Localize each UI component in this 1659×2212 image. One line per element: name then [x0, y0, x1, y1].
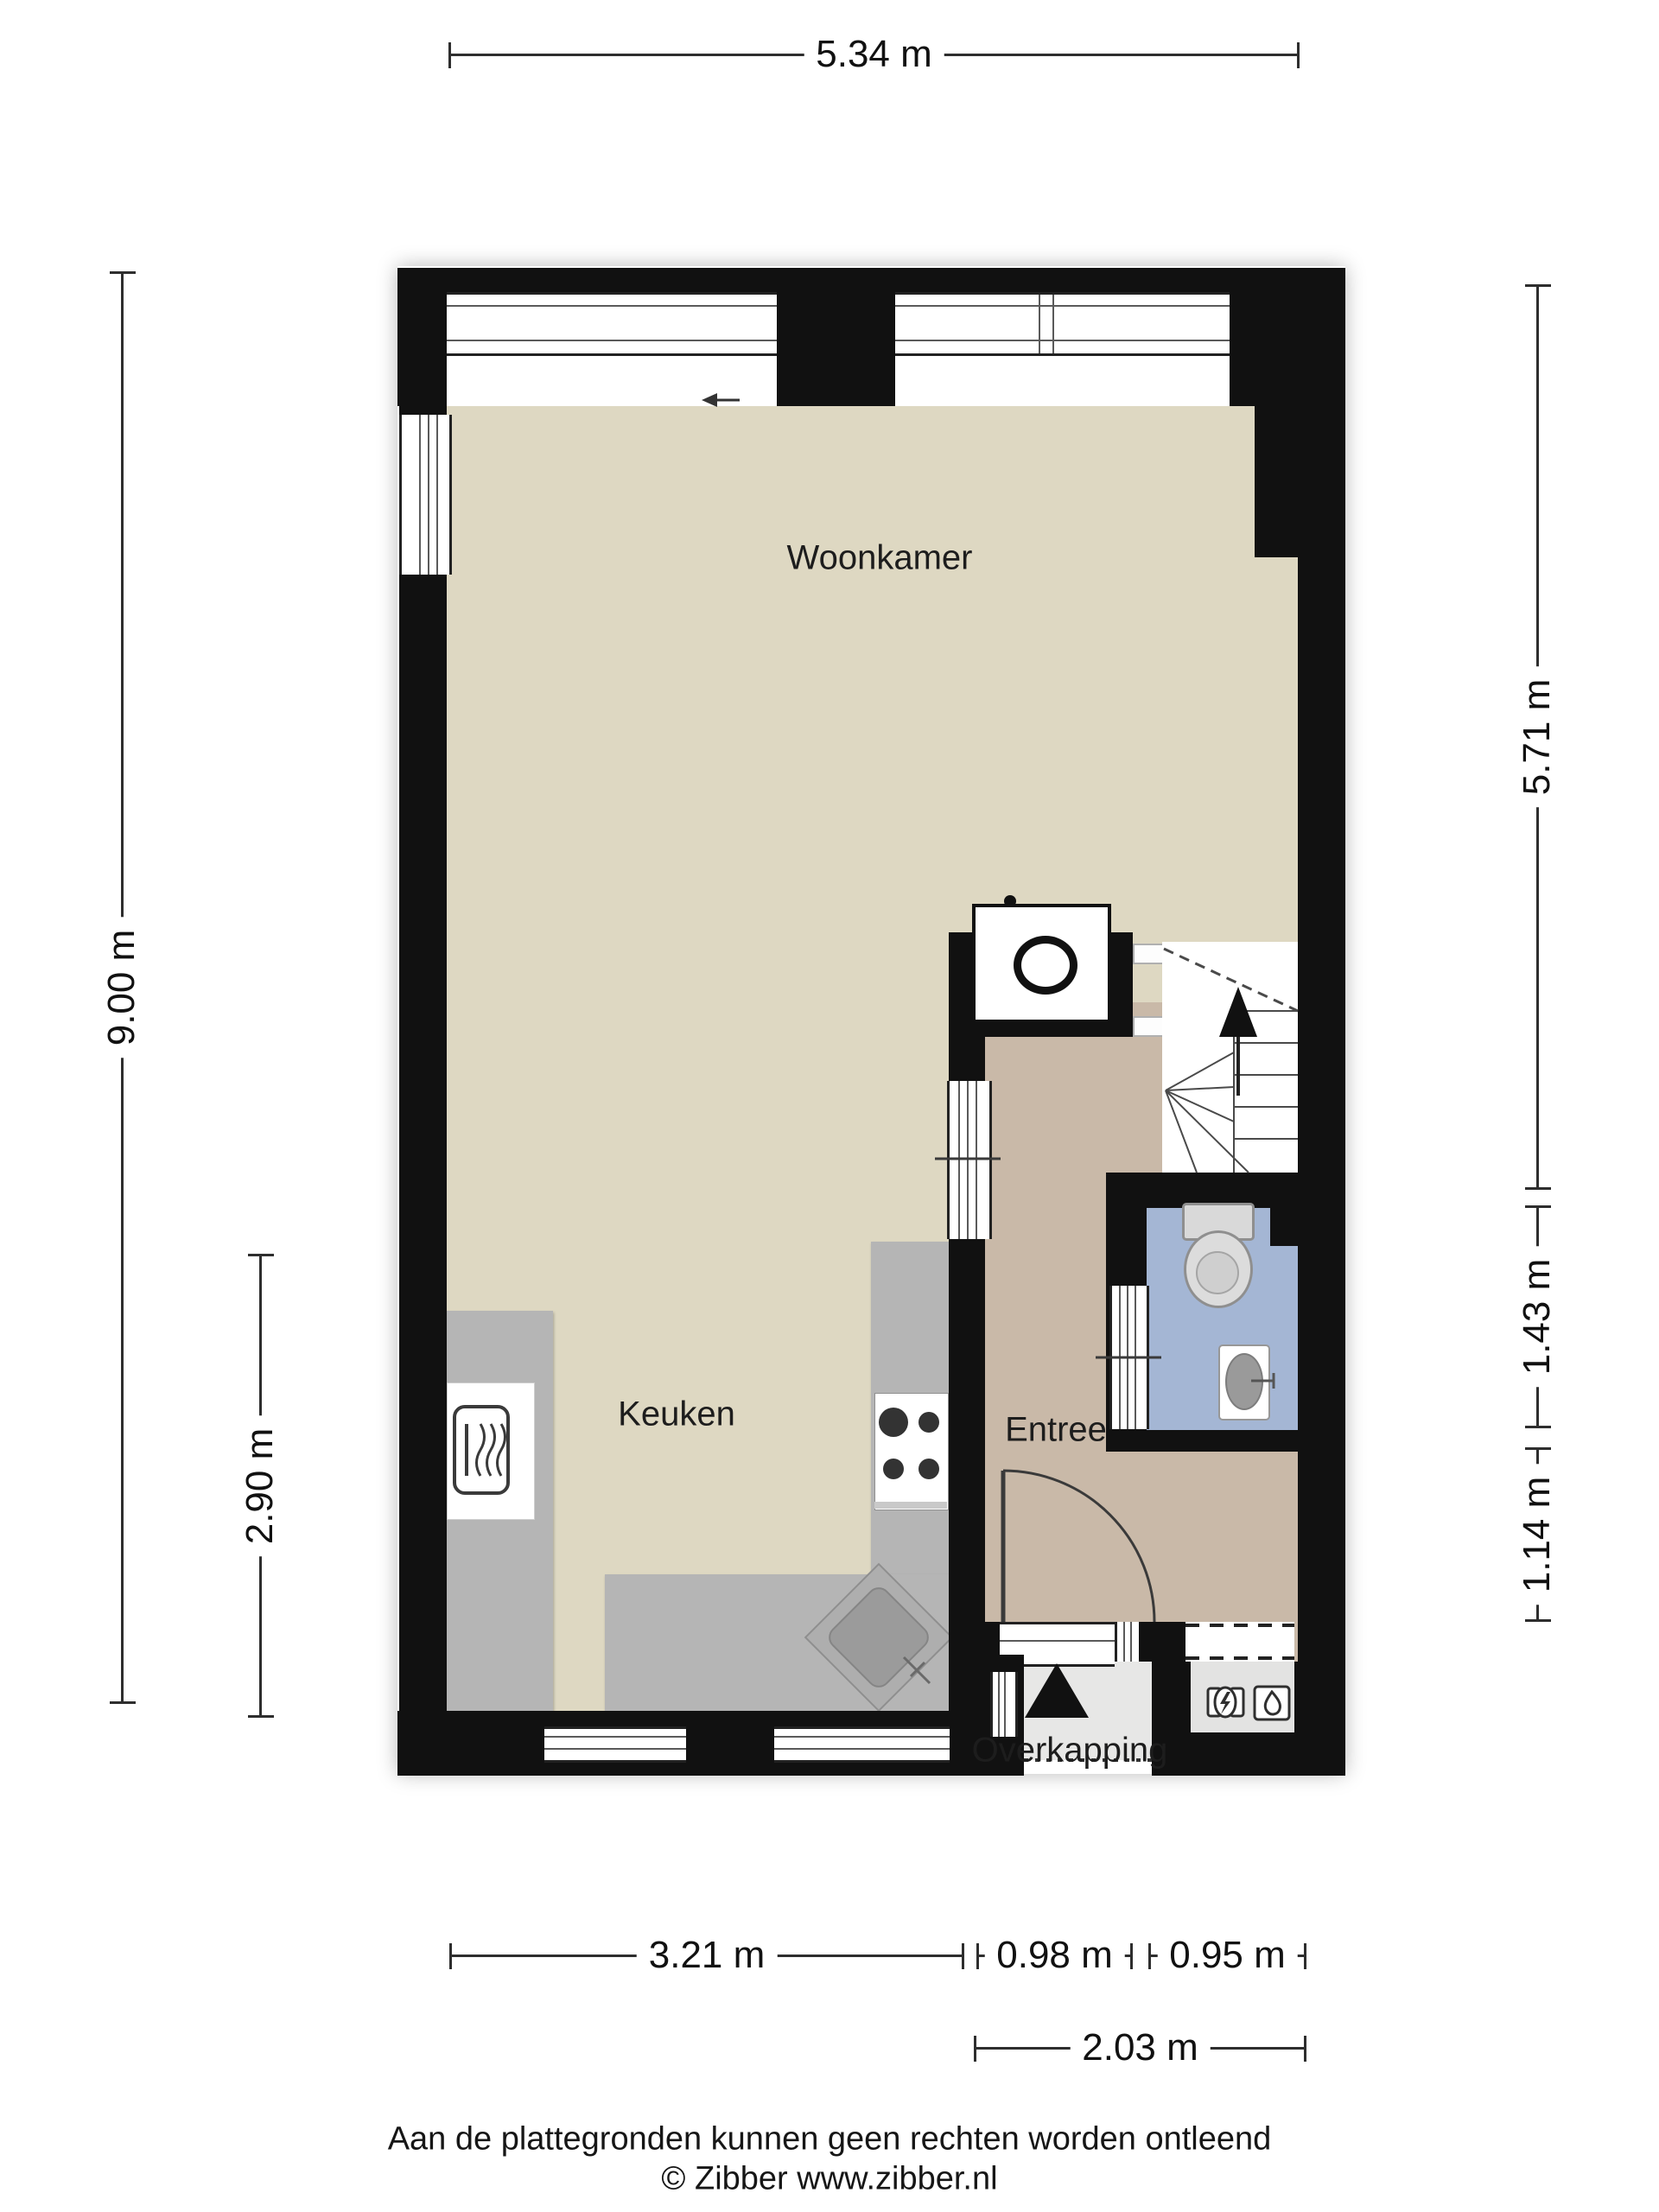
plan-linework — [0, 0, 1659, 2212]
dim-bottom-kitchen: 3.21 m — [450, 1955, 963, 1957]
faucet-icon — [904, 1657, 930, 1683]
water-meter-icon — [1255, 1687, 1289, 1719]
dim-right-entree: 1.14 m — [1536, 1448, 1539, 1621]
room-label-overkapping: Overkapping — [972, 1732, 1168, 1770]
room-label-keuken: Keuken — [618, 1395, 735, 1434]
footer-credit: © Zibber www.zibber.nl — [661, 2161, 997, 2198]
footer-disclaimer: Aan de plattegronden kunnen geen rechten… — [388, 2121, 1272, 2158]
room-label-woonkamer: Woonkamer — [787, 539, 973, 578]
stairs-up-arrow-icon — [1219, 987, 1257, 1096]
dim-left-total: 9.00 m — [121, 272, 124, 1703]
dim-bottom-entree: 0.98 m — [977, 1955, 1132, 1957]
dim-bottom-overkapping: 2.03 m — [975, 2047, 1306, 2050]
front-door-icon — [1003, 1471, 1154, 1622]
room-label-entree: Entree — [1005, 1411, 1107, 1450]
oven-icon — [454, 1407, 508, 1493]
stairs-icon — [1164, 949, 1298, 1173]
sliding-direction-arrow-icon — [702, 393, 740, 407]
electric-meter-icon — [1208, 1688, 1243, 1717]
dim-left-kitchen: 2.90 m — [259, 1255, 262, 1717]
dim-right-living: 5.71 m — [1536, 285, 1539, 1189]
dim-top-width: 5.34 m — [449, 54, 1299, 56]
dim-right-toilet: 1.43 m — [1536, 1206, 1539, 1427]
floorplan-canvas: Woonkamer Keuken Entree Overkapping 5.34… — [0, 0, 1659, 2212]
faucet-icon — [1251, 1373, 1274, 1389]
dim-bottom-meter: 0.95 m — [1149, 1955, 1306, 1957]
